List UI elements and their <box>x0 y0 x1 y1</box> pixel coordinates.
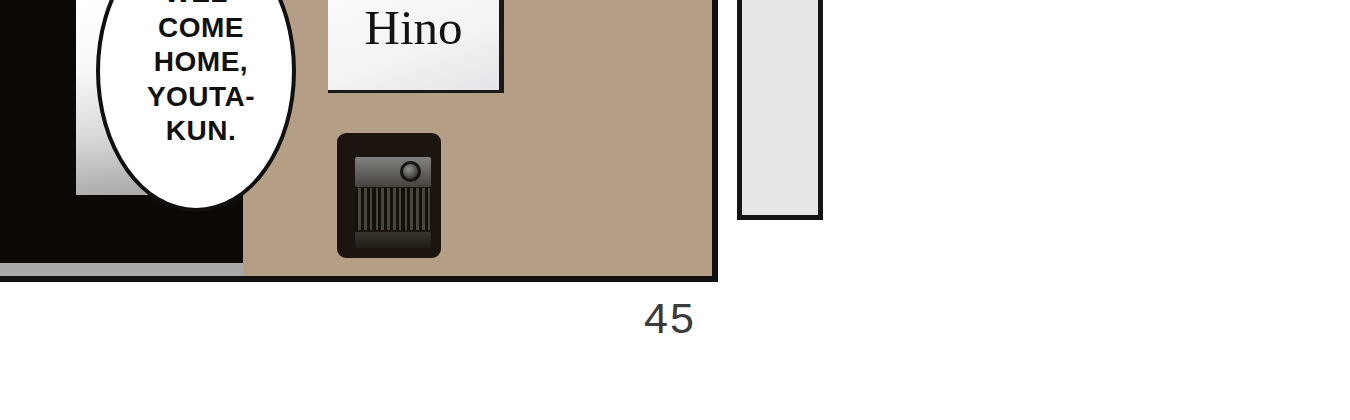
bubble-line: WEL- <box>121 0 281 11</box>
bubble-line: COME <box>121 11 281 46</box>
intercom-unit <box>337 133 441 258</box>
intercom-top-panel <box>355 157 431 187</box>
nameplate-name: Hino <box>328 3 499 52</box>
bubble-line: YOUTA- <box>121 80 281 115</box>
manga-page: Hino WEL- COME HOME, YOUTA- KUN. 45 <box>0 0 1350 420</box>
page-number: 45 <box>620 296 720 340</box>
panel-border-bottom <box>0 276 718 282</box>
bubble-line: KUN. <box>121 114 281 149</box>
intercom-bottom-panel <box>355 232 431 248</box>
speaker-grille-icon <box>355 188 431 230</box>
doorbell-button-icon <box>400 161 421 182</box>
speech-bubble-text: WEL- COME HOME, YOUTA- KUN. <box>121 0 281 149</box>
nameplate: Hino <box>328 0 504 93</box>
floor-strip <box>0 263 243 276</box>
wall-pillar-panel <box>737 0 823 220</box>
bubble-line: HOME, <box>121 45 281 80</box>
